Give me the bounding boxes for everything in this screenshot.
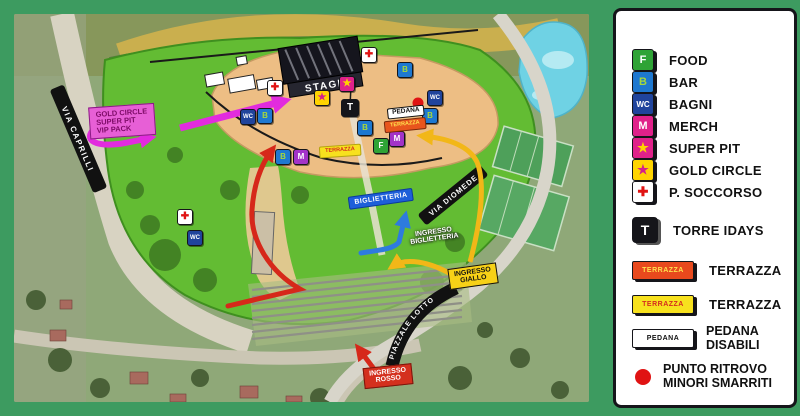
legend-label: PUNTO RITROVO MINORI SMARRITI [663,363,772,391]
legend-label: PEDANA DISABILI [706,325,759,353]
terrazza-red-icon: TERRAZZA [632,261,694,280]
map-terrain: STAGE VIA CAPRILLI VIA DIOMEDE PIAZZALE … [14,14,589,402]
venue-map: STAGE VIA CAPRILLI VIA DIOMEDE PIAZZALE … [14,14,589,402]
first-aid-icon: ✚ [632,181,654,203]
legend-label: FOOD [669,53,708,68]
merch-icon: M [293,149,309,165]
food-icon: F [373,138,389,154]
bar-icon: B [632,71,654,93]
legend-row-pedana: PEDANA PEDANA DISABILI [632,325,759,353]
legend-label: TORRE IDAYS [673,223,764,238]
lost-children-point-icon [635,369,651,385]
merch-icon: M [389,131,405,147]
legend-label: BAGNI [669,97,712,112]
legend-label: BAR [669,75,698,90]
super-pit-icon: ★ [632,137,654,159]
terrazza-yellow-icon: TERRAZZA [632,295,694,314]
wc-icon: WC [187,230,203,246]
wc-icon: WC [240,109,256,125]
gold-circle-icon: ★ [314,90,330,106]
legend-label: MERCH [669,119,718,134]
wc-icon: WC [632,93,654,115]
wc-icon: WC [427,90,443,106]
legend-row-gold-circle: ★ GOLD CIRCLE [632,159,762,181]
legend-row-merch: M MERCH [632,115,718,137]
food-icon: F [632,49,654,71]
festival-map-page: { "legend": { "items": [ {"glyph": "F", … [0,0,800,416]
gold-circle-icon: ★ [632,159,654,181]
torre-idays-icon: T [632,217,658,243]
legend-label: TERRAZZA [709,263,781,278]
bar-icon: B [357,120,373,136]
legend-row-bar: B BAR [632,71,698,93]
bar-icon: B [257,108,273,124]
legend-row-terrazza-yellow: TERRAZZA TERRAZZA [632,295,781,314]
first-aid-icon: ✚ [177,209,193,225]
legend-panel: F FOOD B BAR WC BAGNI M MERCH ★ SUPER PI… [613,8,797,408]
gold-circle-callout: GOLD CIRCLE SUPER PIT VIP PACK [88,103,156,139]
legend-row-punto-ritrovo: PUNTO RITROVO MINORI SMARRITI [632,363,772,391]
legend-row-soccorso: ✚ P. SOCCORSO [632,181,762,203]
legend-row-bagni: WC BAGNI [632,93,712,115]
legend-label: SUPER PIT [669,141,740,156]
legend-row-terrazza-red: TERRAZZA TERRAZZA [632,261,781,280]
bar-icon: B [397,62,413,78]
legend-label: P. SOCCORSO [669,185,762,200]
first-aid-icon: ✚ [267,80,283,96]
super-pit-icon: ★ [339,76,355,92]
bar-icon: B [275,149,291,165]
legend-row-super-pit: ★ SUPER PIT [632,137,740,159]
legend-label: TERRAZZA [709,297,781,312]
legend-label: GOLD CIRCLE [669,163,762,178]
legend-row-torre: T TORRE IDAYS [632,217,764,243]
first-aid-icon: ✚ [361,47,377,63]
pedana-icon: PEDANA [632,329,694,348]
legend-row-food: F FOOD [632,49,708,71]
torre-idays-icon: T [341,99,359,117]
merch-icon: M [632,115,654,137]
